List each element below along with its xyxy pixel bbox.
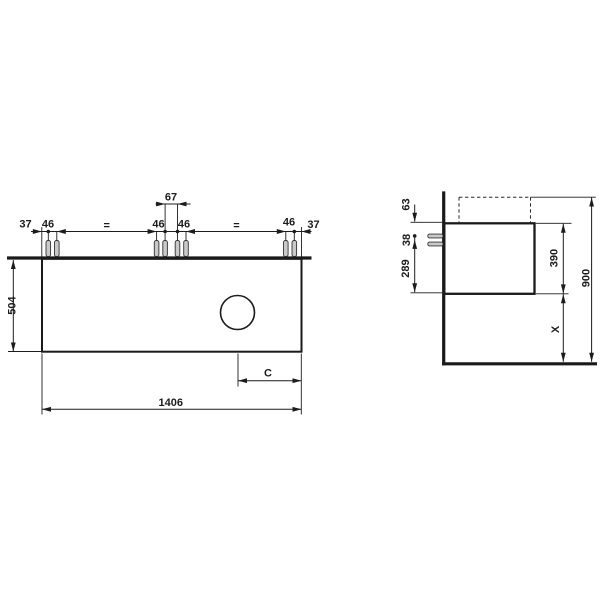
dim-label-x: X — [550, 325, 562, 333]
mounting-pins-front — [46, 241, 297, 257]
mounting-pin — [46, 241, 51, 257]
dimension-38-289: 38 289 — [400, 234, 417, 292]
mounting-pin — [175, 241, 180, 257]
washbasin-dashed-outline — [459, 197, 531, 222]
dim-label-1406: 1406 — [159, 397, 183, 409]
dimension-67: 67 — [156, 192, 191, 207]
extension-lines-top — [42, 204, 302, 257]
dimension-x: X — [550, 294, 566, 362]
mounting-screw — [428, 234, 443, 238]
dim-label-38: 38 — [401, 234, 413, 246]
dim-label-eq-right: = — [233, 220, 239, 232]
dim-label-46-inner-right: 46 — [178, 219, 190, 231]
mounting-pin — [284, 241, 289, 257]
front-view: 37 46 = 46 46 = 46 37 67 504 — [7, 192, 320, 415]
dim-label-504: 504 — [7, 295, 19, 314]
mounting-pin — [55, 241, 60, 257]
drawing-svg: 37 46 = 46 46 = 46 37 67 504 — [0, 0, 600, 600]
mounting-pin — [184, 241, 189, 257]
dim-label-67: 67 — [165, 192, 177, 204]
dimension-c: C — [238, 354, 302, 387]
dim-label-46-inner-left: 46 — [152, 219, 164, 231]
side-view: 63 38 289 390 X — [400, 191, 597, 365]
dim-label-63: 63 — [401, 198, 413, 210]
dim-label-46-outer-right: 46 — [283, 217, 295, 229]
mounting-pin — [292, 241, 297, 257]
dim-label-c: C — [264, 368, 272, 380]
dim-label-289: 289 — [400, 259, 412, 277]
cabinet-front-body — [42, 259, 302, 352]
dimension-390: 390 — [549, 224, 566, 294]
mounting-pin — [154, 241, 159, 257]
mounting-screws-side — [428, 234, 443, 246]
dimension-1406: 1406 — [42, 354, 302, 415]
dimension-900: 900 — [581, 198, 595, 362]
dimension-63: 63 — [401, 198, 418, 221]
dim-label-37-right: 37 — [307, 219, 319, 231]
dim-label-900: 900 — [581, 269, 593, 287]
dim-label-eq-left: = — [103, 220, 109, 232]
dim-label-390: 390 — [549, 249, 561, 267]
dim-label-46-outer-left: 46 — [42, 219, 54, 231]
cabinet-side-body — [444, 223, 534, 293]
mounting-screw — [428, 242, 443, 246]
dim-label-37-left: 37 — [19, 219, 31, 231]
dimension-504: 504 — [7, 260, 43, 352]
dimension-drawing-canvas: 37 46 = 46 46 = 46 37 67 504 — [0, 0, 600, 600]
mounting-pin — [163, 241, 168, 257]
dimension-chain-top: 37 46 = 46 46 = 46 37 — [19, 217, 319, 235]
